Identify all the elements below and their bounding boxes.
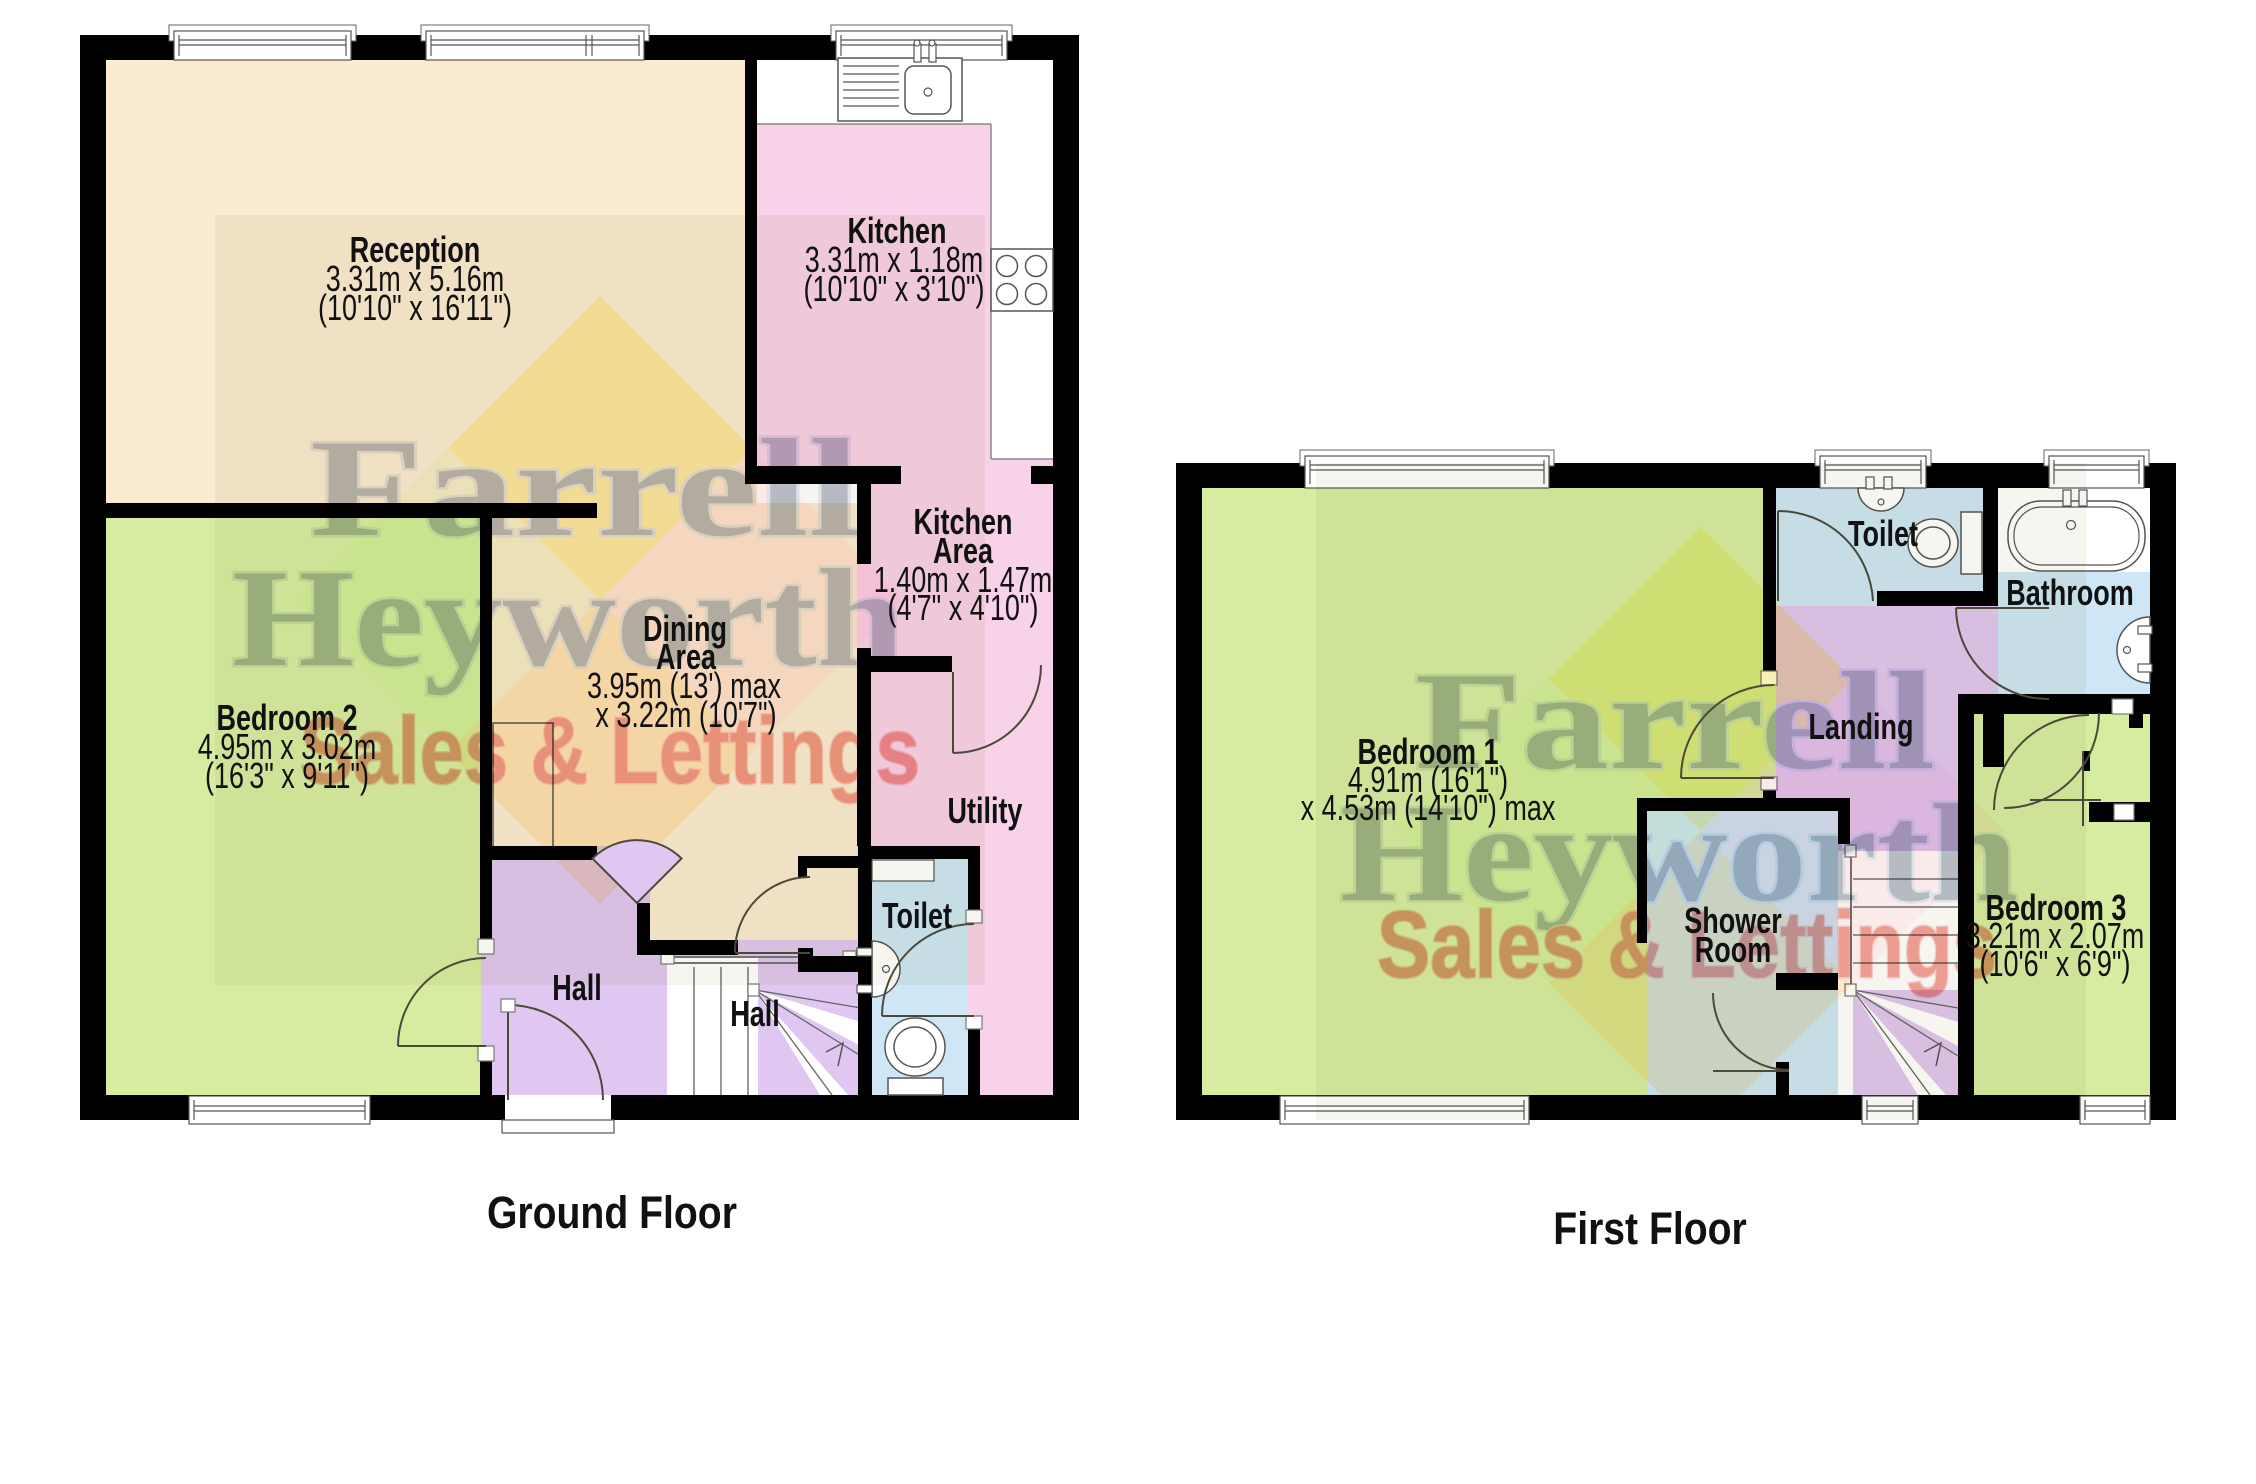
svg-text:Toilet: Toilet [1848,513,1918,554]
svg-text:Heyworth: Heyworth [232,541,904,696]
svg-text:Hall: Hall [730,993,779,1034]
svg-text:(10'10" x 16'11"): (10'10" x 16'11") [318,287,512,328]
svg-text:Hall: Hall [552,967,601,1008]
svg-text:(10'6" x 6'9"): (10'6" x 6'9") [1980,943,2131,984]
svg-text:x 4.53m (14'10") max: x 4.53m (14'10") max [1301,787,1556,828]
svg-text:Landing: Landing [1809,706,1914,747]
svg-text:Utility: Utility [948,790,1023,831]
svg-text:First Floor: First Floor [1553,1203,1746,1253]
svg-text:Bathroom: Bathroom [2006,572,2133,613]
svg-text:(10'10" x 3'10"): (10'10" x 3'10") [804,268,985,309]
svg-text:(4'7" x 4'10"): (4'7" x 4'10") [888,587,1039,628]
svg-text:x 3.22m (10'7"): x 3.22m (10'7") [595,694,776,735]
svg-text:Room: Room [1695,929,1771,970]
svg-text:(16'3" x 9'11"): (16'3" x 9'11") [205,755,369,796]
svg-text:Ground Floor: Ground Floor [487,1187,737,1237]
svg-text:Toilet: Toilet [882,895,952,936]
